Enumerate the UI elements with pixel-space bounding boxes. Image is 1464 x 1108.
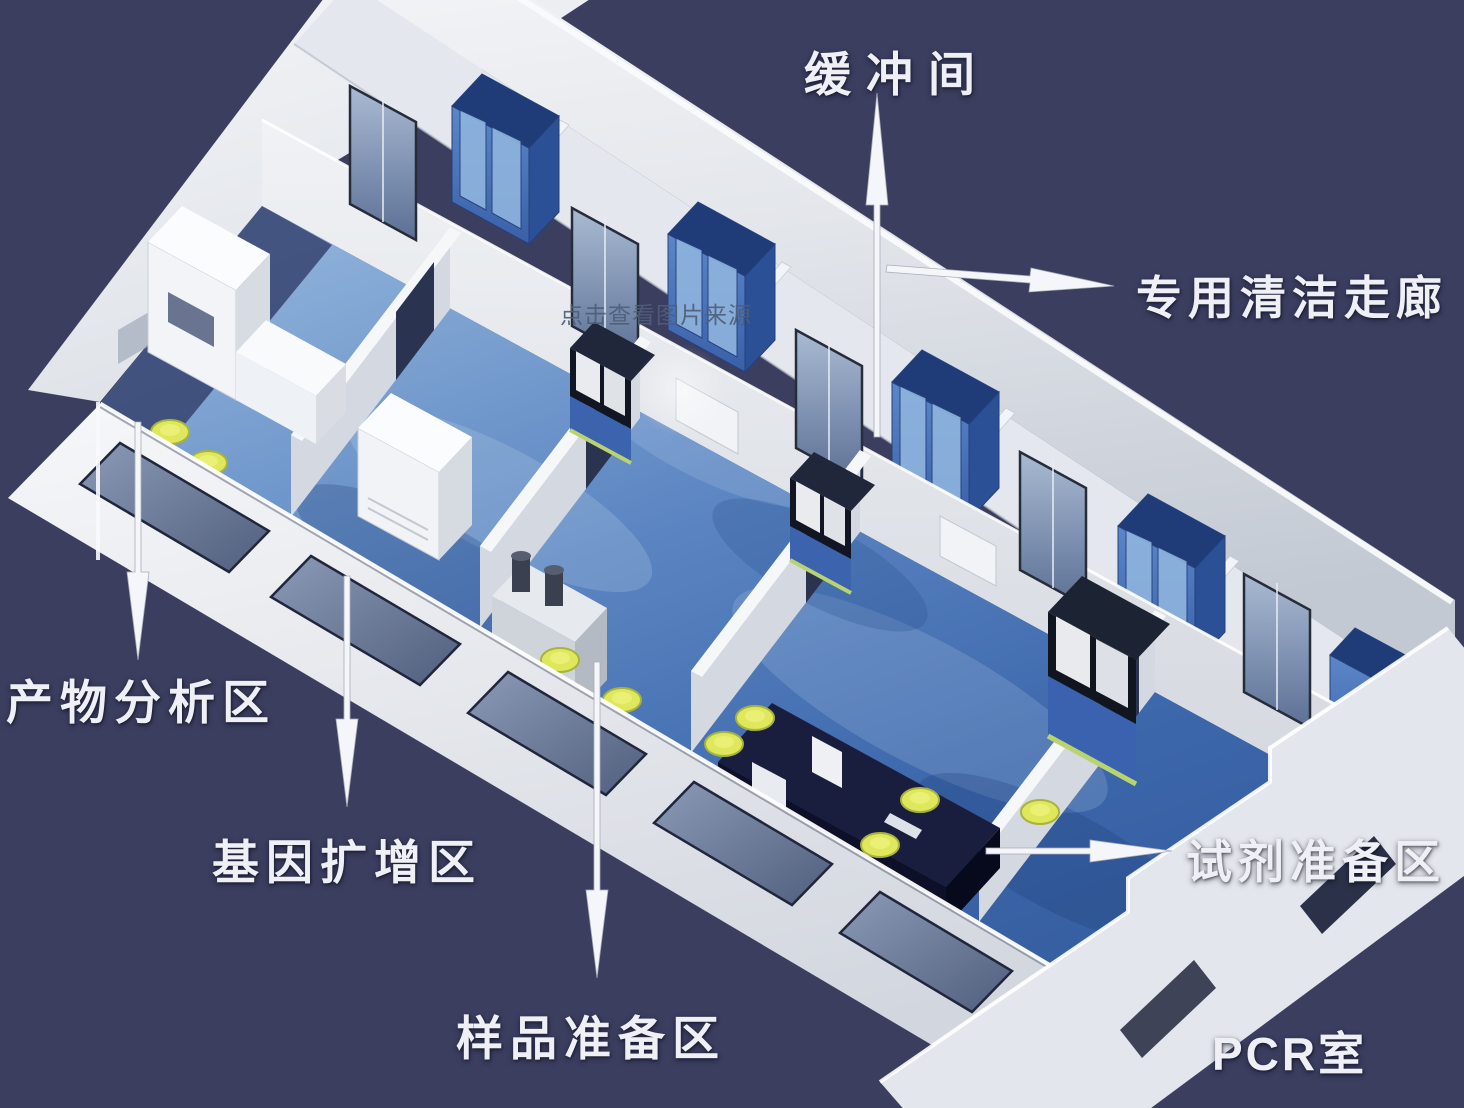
stool xyxy=(1021,800,1059,824)
stool xyxy=(901,788,939,812)
light-flare xyxy=(634,344,726,436)
label-reagent-preparation: 试剂准备区 xyxy=(1186,826,1446,892)
page-title: PCR室 xyxy=(1212,1018,1367,1084)
stool xyxy=(705,732,743,756)
label-gene-amplification: 基因扩增区 xyxy=(212,824,482,893)
label-sample-preparation: 样品准备区 xyxy=(456,1000,726,1069)
pcr-lab-diagram: 缓冲间 专用清洁走廊 产物分析区 基因扩增区 样品准备区 试剂准备区 PCR室 … xyxy=(0,0,1464,1108)
label-clean-corridor: 专用清洁走廊 xyxy=(1136,262,1448,328)
stool xyxy=(861,833,899,857)
stool xyxy=(736,706,774,730)
label-buffer-room: 缓冲间 xyxy=(804,36,990,105)
label-product-analysis: 产物分析区 xyxy=(6,664,276,733)
watermark-source-link[interactable]: 点击查看图片来源 xyxy=(560,296,752,330)
lab-cutaway-illustration xyxy=(0,0,1464,1108)
